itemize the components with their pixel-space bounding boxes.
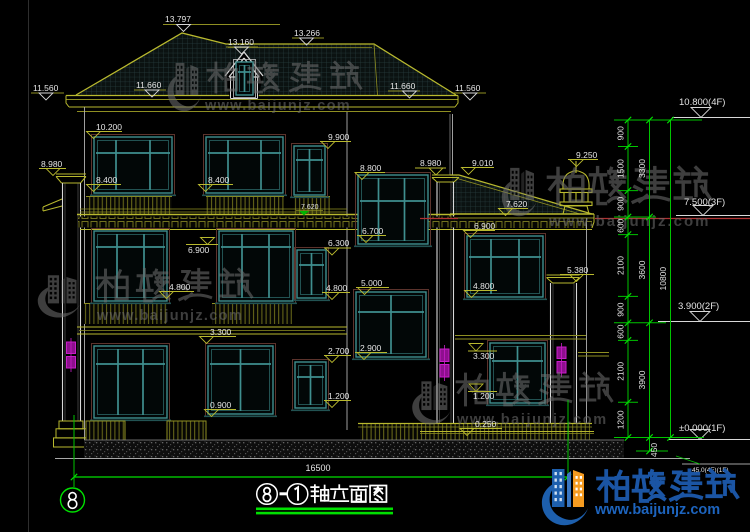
svg-text:5.380: 5.380: [567, 265, 589, 275]
svg-text:3300: 3300: [637, 159, 647, 178]
svg-text:5.000: 5.000: [361, 278, 383, 288]
svg-text:3.900(2F): 3.900(2F): [678, 301, 719, 312]
svg-text:3.300: 3.300: [210, 327, 232, 337]
svg-text:6.900: 6.900: [474, 221, 496, 231]
svg-text:3.300: 3.300: [473, 351, 495, 361]
svg-text:3900: 3900: [637, 370, 647, 389]
svg-text:1200: 1200: [616, 410, 626, 429]
svg-text:10.800(4F): 10.800(4F): [679, 97, 725, 108]
svg-text:www.baijunjz.com: www.baijunjz.com: [96, 308, 243, 324]
svg-text:10.200: 10.200: [96, 122, 122, 132]
svg-text:www.baijunjz.com: www.baijunjz.com: [204, 98, 351, 114]
svg-text:16500: 16500: [305, 463, 330, 473]
svg-text:1500: 1500: [616, 159, 626, 178]
svg-text:www.baijunjz.com: www.baijunjz.com: [594, 502, 720, 518]
svg-text:8.980: 8.980: [41, 159, 63, 169]
svg-text:0.900: 0.900: [210, 400, 232, 410]
svg-text:11.560: 11.560: [455, 83, 481, 93]
svg-text:±0.000(1F): ±0.000(1F): [679, 423, 725, 434]
svg-text:6.900: 6.900: [188, 245, 210, 255]
svg-text:600: 600: [616, 218, 626, 232]
svg-text:0.250: 0.250: [475, 419, 497, 429]
svg-text:9.010: 9.010: [472, 158, 494, 168]
svg-text:2100: 2100: [616, 256, 626, 275]
svg-text:900: 900: [616, 302, 626, 316]
svg-text:9.250: 9.250: [576, 150, 598, 160]
svg-text:10800: 10800: [658, 267, 668, 291]
svg-text:900: 900: [616, 196, 626, 210]
svg-text:7.620: 7.620: [301, 204, 319, 211]
svg-text:450: 450: [649, 443, 659, 457]
svg-text:4.800: 4.800: [326, 283, 348, 293]
svg-text:600: 600: [616, 324, 626, 338]
svg-text:8.800: 8.800: [360, 163, 382, 173]
svg-text:4.800: 4.800: [473, 281, 495, 291]
svg-text:9.900: 9.900: [328, 132, 350, 142]
svg-text:8.400: 8.400: [96, 175, 118, 185]
svg-text:13.160: 13.160: [228, 37, 254, 47]
svg-text:4.800: 4.800: [169, 282, 191, 292]
svg-text:2.900: 2.900: [360, 343, 382, 353]
svg-text:13.797: 13.797: [165, 14, 191, 24]
svg-text:8.980: 8.980: [420, 158, 442, 168]
svg-text:8.400: 8.400: [208, 175, 230, 185]
svg-text:6.300: 6.300: [328, 238, 350, 248]
svg-text:7.500(3F): 7.500(3F): [684, 197, 725, 208]
svg-text:7.620: 7.620: [506, 199, 528, 209]
svg-text:2100: 2100: [616, 362, 626, 381]
svg-text:6.700: 6.700: [362, 226, 384, 236]
svg-text:13.266: 13.266: [294, 28, 320, 38]
svg-text:3600: 3600: [637, 260, 647, 279]
svg-text:11.660: 11.660: [390, 81, 416, 91]
svg-text:11.660: 11.660: [136, 80, 162, 90]
svg-text:11.560: 11.560: [33, 83, 59, 93]
svg-text:1.200: 1.200: [473, 391, 495, 401]
svg-text:1.200: 1.200: [328, 391, 350, 401]
svg-text:2.700: 2.700: [328, 346, 350, 356]
svg-text:900: 900: [616, 126, 626, 140]
